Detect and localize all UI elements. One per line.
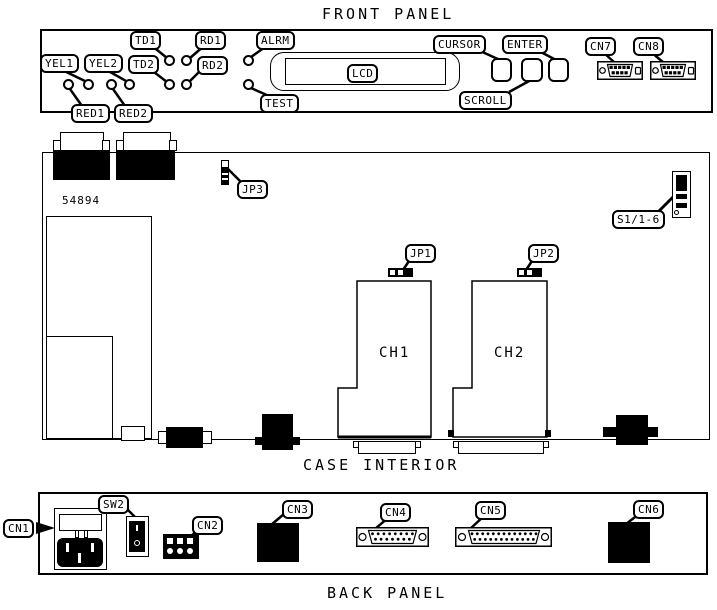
- cn3-label: CN3: [282, 500, 313, 519]
- td1-label: TD1: [130, 31, 161, 50]
- switch-off-mark: [134, 540, 140, 546]
- yel1-label: YEL1: [40, 54, 79, 73]
- cn7-label: CN7: [585, 37, 616, 56]
- td2-led: [164, 79, 175, 90]
- ch2-db-outline: [458, 441, 544, 454]
- rd2-led: [181, 79, 192, 90]
- cn3-connector: [257, 523, 299, 562]
- cn1-callout-arrow: [36, 522, 55, 534]
- red2-led: [106, 79, 117, 90]
- rd1-label: RD1: [195, 31, 226, 50]
- red1-label: RED1: [71, 104, 110, 123]
- cn4-db15-connector: [356, 527, 429, 547]
- bottom-connector-2-tab-right: [292, 437, 300, 445]
- sw2-label: SW2: [98, 495, 129, 514]
- cursor-button: [491, 58, 512, 82]
- bottom-connector-3-body: [616, 415, 648, 445]
- alrm-label: ALRM: [256, 31, 295, 50]
- jp3-label: JP3: [237, 180, 268, 199]
- cn1-power-inlet: [54, 508, 107, 570]
- cursor-label: CURSOR: [433, 35, 486, 54]
- fuse-drawer: [59, 514, 102, 531]
- back-panel-title: BACK PANEL: [327, 584, 447, 602]
- top-connector-1-body: [53, 150, 110, 180]
- jp3-jumper: [221, 160, 230, 185]
- cn5-label: CN5: [475, 501, 506, 520]
- top-connector-2-shell: [123, 132, 171, 151]
- s1-label: S1/1-6: [612, 210, 665, 229]
- top-connector-1-shell: [60, 132, 104, 151]
- hardware-diagram: FRONT PANEL TD1 RD1 ALRM YEL1 YEL2 TD2 R…: [0, 0, 717, 610]
- rd1-led: [181, 55, 192, 66]
- cn8-db9-connector: [650, 61, 696, 80]
- jp1-label: JP1: [405, 244, 436, 263]
- bottom-connector-2-body: [262, 414, 293, 450]
- yel2-led: [124, 79, 135, 90]
- cn4-label: CN4: [380, 503, 411, 522]
- cn1-label: CN1: [3, 519, 34, 538]
- enter-button: [548, 58, 569, 82]
- scroll-label: SCROLL: [459, 91, 512, 110]
- cn6-label: CN6: [633, 500, 664, 519]
- bottom-connector-1-body: [166, 427, 203, 448]
- cn2-label: CN2: [192, 516, 223, 535]
- board-number: 54894: [62, 194, 100, 207]
- cn8-label: CN8: [633, 37, 664, 56]
- test-led: [243, 79, 254, 90]
- jp2-label: JP2: [528, 244, 559, 263]
- transformer-inner-outline: [46, 336, 113, 439]
- bottom-connector-3-tab-right: [647, 427, 658, 437]
- bottom-connector-1-tab-right: [202, 431, 212, 444]
- alrm-led: [243, 55, 254, 66]
- cn5-db25-connector: [455, 527, 552, 547]
- enter-label: ENTER: [502, 35, 548, 54]
- jp1-jumper: [388, 268, 413, 277]
- ch1-text: CH1: [379, 345, 410, 361]
- td2-label: TD2: [128, 55, 159, 74]
- td1-led: [164, 55, 175, 66]
- test-label: TEST: [260, 94, 299, 113]
- scroll-button: [521, 58, 543, 82]
- rd2-label: RD2: [197, 56, 228, 75]
- red2-label: RED2: [114, 104, 153, 123]
- ch2-text: CH2: [494, 345, 525, 361]
- cn2-connector: [163, 534, 199, 559]
- s1-dip-switch: [672, 171, 691, 218]
- yel1-led: [83, 79, 94, 90]
- top-connector-2-body: [116, 150, 175, 180]
- case-interior-title: CASE INTERIOR: [303, 456, 459, 474]
- yel2-label: YEL2: [84, 54, 123, 73]
- red1-led: [63, 79, 74, 90]
- cn7-db9-connector: [597, 61, 643, 80]
- cn6-connector: [608, 522, 650, 563]
- sw2-power-switch: [126, 516, 149, 557]
- bottom-connector-3-tab-left: [603, 427, 617, 437]
- lcd-label: LCD: [347, 64, 378, 83]
- jp2-jumper: [517, 268, 542, 277]
- ch1-db-outline: [358, 441, 416, 454]
- iec-socket: [57, 538, 103, 567]
- bottom-white-component: [121, 426, 145, 441]
- front-panel-title: FRONT PANEL: [322, 5, 454, 23]
- switch-on-mark: [136, 525, 138, 531]
